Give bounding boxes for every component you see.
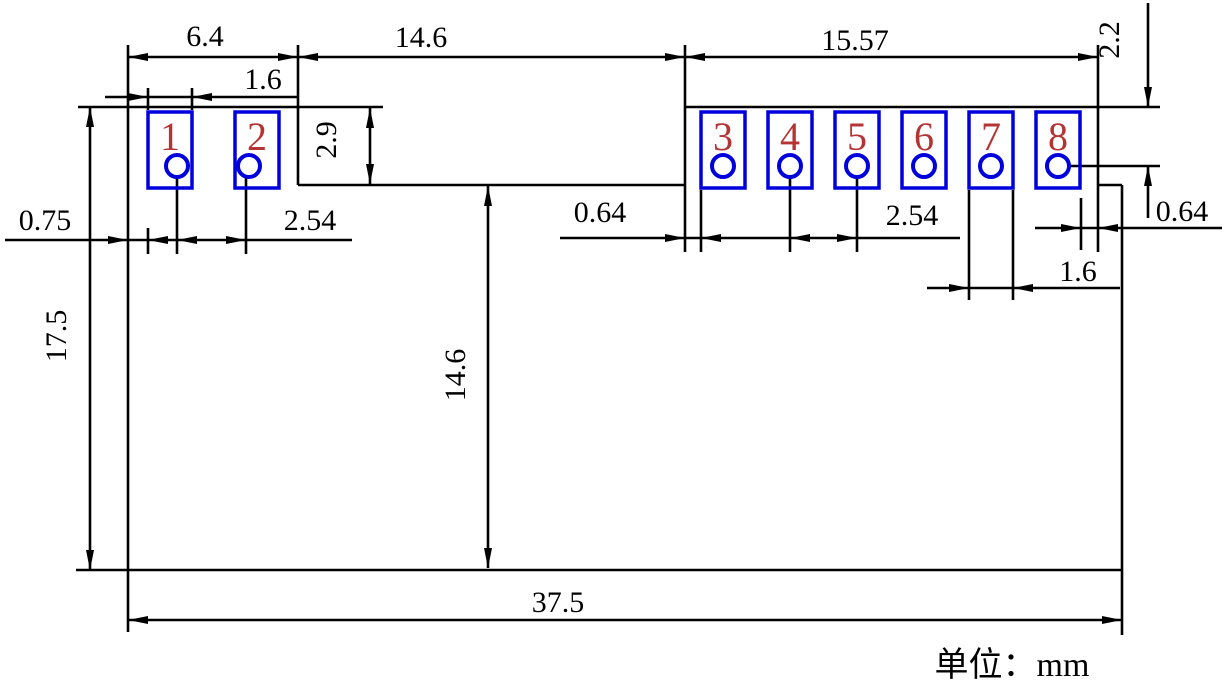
arrow <box>949 284 969 292</box>
arrow <box>1098 224 1118 232</box>
pad-6-number: 6 <box>914 114 934 159</box>
dimension-drawing: 1 2 3 4 5 6 7 <box>0 0 1225 692</box>
dim-pad8-to-edge: 0.64 <box>1156 195 1209 228</box>
pad-2: 2 <box>235 112 279 188</box>
arrow <box>484 186 492 206</box>
dim-pad1-width: 1.6 <box>244 63 282 96</box>
arrow <box>1061 224 1081 232</box>
pad-4-number: 4 <box>780 114 800 159</box>
dim-notch-width: 14.6 <box>395 21 448 54</box>
pad-6: 6 <box>902 112 946 188</box>
arrow <box>128 53 148 61</box>
arrow <box>86 107 94 127</box>
pad-5: 5 <box>835 112 879 188</box>
pads: 1 2 3 4 5 6 7 <box>148 112 1080 188</box>
dim-body-width: 37.5 <box>532 586 585 619</box>
arrow <box>484 548 492 568</box>
arrow <box>1102 616 1122 624</box>
dim-pitch-left: 2.54 <box>284 204 337 237</box>
pad-3-number: 3 <box>713 114 733 159</box>
arrow <box>1144 166 1152 186</box>
arrow <box>148 236 168 244</box>
unit-note: 单位：mm <box>935 646 1090 684</box>
dimension-lines <box>5 3 1222 620</box>
drawing-canvas: 1 2 3 4 5 6 7 <box>0 0 1225 692</box>
pad-3: 3 <box>701 112 745 188</box>
pad-1: 1 <box>148 112 192 188</box>
arrow <box>790 234 810 242</box>
dim-pitch-right: 2.54 <box>886 199 939 232</box>
arrow <box>128 93 148 101</box>
dim-notch-depth: 2.9 <box>310 121 343 159</box>
dim-body-height: 17.5 <box>40 310 73 363</box>
arrow <box>685 53 705 61</box>
arrow <box>366 164 374 184</box>
dim-notch-to-pad3: 0.64 <box>574 196 627 229</box>
arrow <box>665 53 685 61</box>
arrow <box>226 236 246 244</box>
arrow <box>665 234 685 242</box>
dim-edge-to-pad1: 0.75 <box>19 204 72 237</box>
arrow <box>837 234 857 242</box>
pad-2-number: 2 <box>247 114 267 159</box>
pad-8-number: 8 <box>1048 114 1068 159</box>
arrow <box>192 93 212 101</box>
pad-8: 8 <box>1036 112 1080 188</box>
pad-7: 7 <box>969 112 1013 188</box>
arrow <box>108 236 128 244</box>
dimension-labels: 6.4 1.6 14.6 15.57 2.2 2.9 0.75 2.54 0.6… <box>19 20 1209 684</box>
arrow <box>298 53 318 61</box>
arrow <box>701 234 721 242</box>
arrow <box>1144 87 1152 107</box>
arrow <box>177 236 197 244</box>
pad-7-number: 7 <box>981 114 1001 159</box>
arrow <box>128 616 148 624</box>
dim-right-section-width: 15.57 <box>821 24 889 57</box>
arrow <box>366 108 374 128</box>
dim-notch-to-bottom: 14.6 <box>439 349 472 402</box>
dim-pad7-width: 1.6 <box>1059 255 1097 288</box>
dim-left-section-width: 6.4 <box>186 20 224 53</box>
arrow <box>86 550 94 570</box>
pad-4: 4 <box>768 112 812 188</box>
arrow <box>278 53 298 61</box>
pad-5-number: 5 <box>847 114 867 159</box>
arrow <box>1013 284 1033 292</box>
dim-edge-to-hole-row: 2.2 <box>1093 21 1126 59</box>
pad-1-number: 1 <box>160 114 180 159</box>
